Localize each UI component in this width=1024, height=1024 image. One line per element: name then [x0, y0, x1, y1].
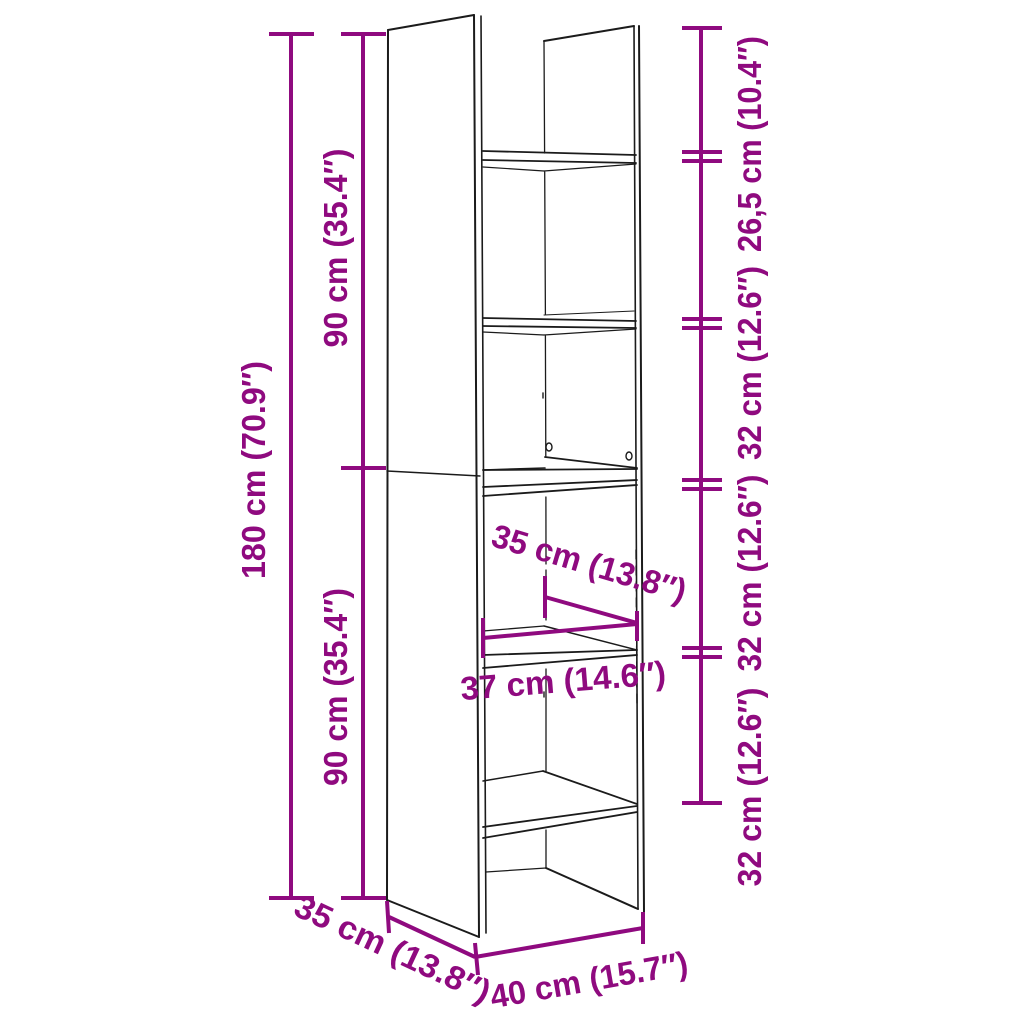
svg-text:180 cm (70.9″): 180 cm (70.9″) [235, 361, 272, 579]
svg-text:90 cm (35.4″): 90 cm (35.4″) [317, 588, 354, 786]
svg-text:90 cm (35.4″): 90 cm (35.4″) [317, 149, 354, 348]
svg-text:32 cm (12.6″): 32 cm (12.6″) [731, 475, 768, 672]
svg-text:32 cm (12.6″): 32 cm (12.6″) [731, 688, 768, 887]
svg-text:32 cm (12.6″): 32 cm (12.6″) [731, 266, 768, 460]
svg-text:26,5 cm (10.4″): 26,5 cm (10.4″) [731, 36, 768, 252]
